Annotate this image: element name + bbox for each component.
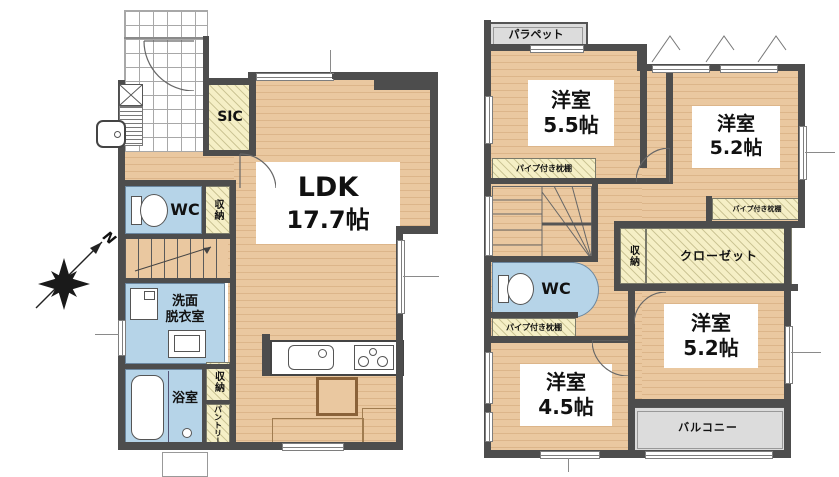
window: [118, 320, 126, 356]
window: [530, 45, 584, 53]
room-sw-name: 洋室: [546, 370, 586, 395]
storage-2f-label: 収納: [620, 228, 646, 284]
wall-segment: [202, 366, 206, 446]
window-swing-mark: [648, 28, 684, 64]
wall-segment: [484, 312, 578, 318]
closet-2f-label: クローゼット: [646, 228, 792, 284]
kitchen-counter: [270, 340, 404, 376]
floorplan-stage: SIC WC 収納 洗面 脱衣室 浴室 収納 パントリー: [0, 0, 839, 477]
washroom-line2: 脱衣室: [165, 310, 204, 326]
burner-icon: [377, 356, 388, 367]
pipe-shelf-nw-label: パイプ付き枕棚: [492, 158, 596, 180]
wall-segment: [484, 178, 602, 184]
island-table: [316, 377, 358, 416]
dimension-tick: [95, 334, 119, 335]
window: [485, 196, 493, 256]
wall-segment: [203, 400, 230, 404]
pipe-shelf-sw-label: パイプ付き枕棚: [492, 318, 576, 338]
fixture-dot: [114, 131, 121, 138]
window: [720, 65, 778, 73]
window-swing-mark: [702, 28, 738, 64]
kitchen-wall-stub: [262, 334, 270, 376]
ldk-label: LDK 17.7帖: [256, 162, 400, 244]
door-swing: [636, 148, 670, 182]
room-nw-label: 洋室 5.5帖: [528, 80, 614, 146]
bench: [272, 418, 364, 443]
dimension-tick: [403, 276, 439, 277]
wall-segment: [230, 180, 236, 448]
wc-2f-label: WC: [536, 262, 576, 316]
entrance-porch-tiles: [124, 10, 208, 40]
dimension-tick: [791, 352, 821, 353]
wall-segment: [118, 442, 403, 450]
balcony-label: バルコニー: [656, 416, 760, 440]
wall-segment: [614, 284, 798, 291]
room-ne-area: 5.2帖: [710, 137, 763, 161]
window: [485, 96, 493, 144]
ldk-area: 17.7帖: [286, 205, 369, 235]
wall-segment: [398, 226, 438, 234]
vanity-basin: [174, 335, 200, 352]
wall-segment: [249, 78, 256, 156]
wall-segment: [614, 221, 798, 228]
shaft-box: [119, 84, 143, 106]
legend-box: [162, 452, 208, 477]
wall-segment: [202, 182, 206, 234]
wall-segment: [430, 72, 438, 234]
toilet-bowl-icon: [507, 273, 534, 305]
window-swing-mark: [754, 28, 790, 64]
window: [485, 352, 493, 404]
sic-label: SIC: [208, 84, 252, 152]
bath-drain-icon: [182, 428, 192, 438]
burner-icon: [369, 348, 377, 356]
window: [645, 451, 773, 459]
wall-segment: [203, 36, 209, 152]
wall-segment: [332, 74, 348, 79]
window: [397, 240, 405, 314]
window: [540, 451, 600, 459]
dimension-tick: [330, 50, 331, 74]
wall-segment: [118, 234, 236, 239]
wall-segment: [118, 278, 236, 283]
wall-segment: [118, 180, 236, 186]
toilet-bowl-icon: [140, 194, 168, 227]
vanity-icon: [168, 330, 206, 358]
wall-segment: [484, 256, 594, 262]
stairs-2f-lines: [492, 186, 592, 260]
pipe-shelf-ne-label: パイプ付き枕棚: [712, 198, 802, 220]
room-se-area: 5.2帖: [683, 336, 738, 361]
washroom-line1: 洗面: [172, 294, 198, 310]
ldk-name: LDK: [298, 171, 359, 205]
door-swing: [238, 152, 276, 188]
wall-segment: [592, 182, 598, 262]
washroom-label: 洗面 脱衣室: [145, 290, 225, 330]
wc-1f-label: WC: [166, 186, 204, 234]
wall-segment: [628, 399, 791, 407]
door-swing: [592, 340, 628, 376]
door-swing: [142, 39, 194, 91]
stairs-1f: [125, 239, 228, 278]
compass-rose: N: [22, 222, 122, 322]
pantry-label: パントリー: [206, 404, 230, 446]
stairs-1f-arrow: [125, 239, 228, 278]
room-ne-name: 洋室: [717, 113, 755, 137]
stairs-2f: [492, 186, 592, 260]
closet-wc-1f-label: 収納: [205, 186, 230, 234]
window: [785, 326, 793, 384]
wall-segment: [614, 221, 620, 287]
burner-icon: [358, 356, 369, 367]
shaft-x-icon: [120, 85, 142, 105]
kitchen-stove-icon: [354, 345, 394, 370]
wall-segment: [374, 74, 438, 90]
room-ne-label: 洋室 5.2帖: [692, 106, 780, 168]
room-nw-name: 洋室: [551, 88, 591, 113]
wall-segment: [706, 196, 712, 222]
dimension-tick: [568, 458, 569, 472]
room-nw-area: 5.5帖: [543, 113, 598, 138]
compass-north-label: N: [99, 229, 118, 249]
window: [799, 126, 807, 180]
outdoor-fixture: [96, 120, 126, 148]
faucet-icon: [318, 349, 327, 358]
room-sw-area: 4.5帖: [538, 395, 593, 420]
dimension-tick: [805, 152, 835, 153]
window: [282, 443, 344, 451]
kitchen-sink-icon: [288, 345, 334, 370]
window: [652, 65, 710, 73]
room-se-name: 洋室: [691, 311, 731, 336]
door-swing: [634, 292, 666, 324]
wall-segment: [118, 364, 236, 369]
window: [485, 412, 493, 442]
window: [256, 73, 334, 81]
room-se-label: 洋室 5.2帖: [664, 304, 758, 368]
